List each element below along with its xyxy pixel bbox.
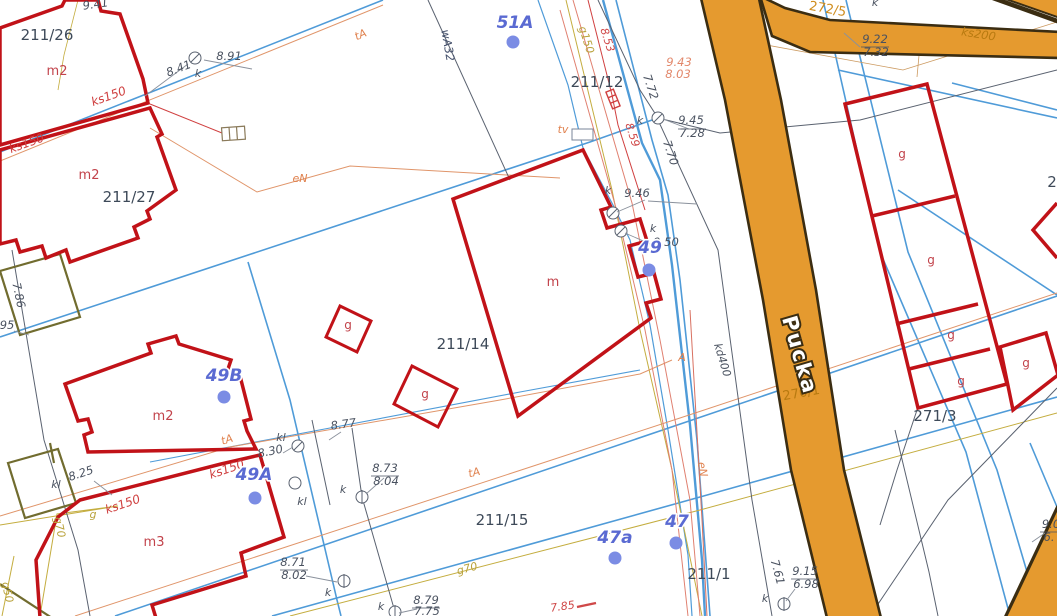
label-util-k-5: k: [872, 0, 879, 9]
tv-box: [572, 129, 593, 140]
buildings: [0, 0, 1057, 616]
label-elev-90: 9.0: [1042, 517, 1057, 531]
telecom-power-lines: [0, 5, 1057, 616]
leader: [617, 200, 645, 212]
label-parcel-211-14: 211/14: [437, 335, 490, 353]
survey-point-plain: [289, 477, 301, 489]
label-util-eN-2: eN: [695, 461, 710, 478]
label-elev-772: 7.72: [640, 72, 661, 101]
label-bldg-m2-1: m2: [47, 64, 68, 79]
label-addr-49A: 49A: [235, 465, 273, 485]
label-elev-873: 8.73: [372, 461, 398, 475]
label-util-ks150-4: ks150: [103, 492, 142, 517]
label-elev-877: 8.77: [330, 415, 358, 433]
label-elev-786: 7.86: [9, 281, 28, 309]
label-parcel-211-12: 211/12: [571, 73, 624, 91]
label-util-tA-2: tA: [219, 432, 234, 448]
water-line: [0, 120, 652, 337]
label-elev-698: 6.98: [793, 577, 819, 591]
label-util-ks150-2: ks150: [7, 130, 46, 156]
boundary: [312, 420, 330, 505]
label-addr-49B: 49B: [205, 366, 243, 386]
leader: [648, 201, 697, 204]
label-elev-841: 8.41: [164, 57, 193, 79]
garage-divider: [872, 196, 955, 216]
label-util-eN-1: eN: [293, 172, 308, 185]
label-elev-775: 7.75: [414, 604, 440, 616]
label-util-g50: g50: [0, 581, 16, 604]
road-branch: [760, 0, 1057, 58]
label-bldg-g-3: g: [898, 147, 906, 161]
label-elev-803: 8.03: [665, 67, 691, 81]
label-util-tA-3: tA: [467, 465, 482, 480]
label-parcel-211-26: 211/26: [21, 26, 74, 44]
building-partial-right: [1033, 203, 1057, 258]
label-util-k-7: k: [340, 483, 347, 496]
water-line: [1030, 443, 1057, 507]
label-util-A: A: [677, 351, 686, 364]
label-addr-47a: 47a: [596, 528, 632, 548]
leader-lines: [14, 33, 1045, 613]
roads: [700, 0, 1057, 616]
tv-box-symbol: [572, 129, 593, 140]
label-elev-732: 7.32: [863, 45, 889, 59]
water-line: [838, 70, 1057, 118]
label-parcel-271-3: 271/3: [913, 407, 956, 425]
boundary: [880, 407, 918, 525]
label-util-kl-3: kl: [51, 478, 60, 491]
label-bldg-m2-3: m2: [153, 409, 174, 424]
red-box-hatch: [610, 100, 617, 103]
label-util-k-4: k: [650, 222, 657, 235]
addr-dot-49A: [249, 492, 262, 505]
label-elev-728: 7.28: [679, 126, 705, 140]
label-addr-49: 49: [637, 238, 662, 258]
label-util-g70-2: g70: [455, 560, 479, 578]
label-util-tA-1: tA: [353, 26, 369, 43]
label-util-k-1: k: [195, 67, 202, 80]
label-parcel-partial: 2: [1047, 173, 1057, 191]
utility-box: [222, 126, 246, 141]
building-m2-21126: [0, 0, 148, 145]
label-parcel-211-15: 211/15: [476, 511, 529, 529]
label-util-g: g: [90, 508, 97, 521]
cadastral-map-svg: 211/26211/27211/12211/14211/15211/1271/3…: [0, 0, 1057, 616]
label-util-k-3: k: [605, 184, 612, 197]
label-addr-51A: 51A: [497, 13, 534, 33]
label-util-k-6: k: [762, 592, 769, 605]
label-util-wA32: wA32: [438, 28, 457, 62]
label-elev-6x: 6.: [1044, 530, 1055, 544]
red-dash-symbol: [577, 603, 596, 607]
leader: [329, 432, 341, 440]
label-elev-871: 8.71: [280, 555, 306, 569]
label-elev-830: 8.30: [256, 442, 284, 461]
label-elev-891: 8.91: [216, 49, 242, 63]
label-elev-922: 9.22: [862, 32, 888, 46]
address-points: [218, 36, 683, 565]
label-bldg-g-4: g: [927, 253, 935, 267]
road-pucka: [700, 0, 882, 616]
other-structures: [0, 254, 80, 616]
label-bldg-m2-2: m2: [79, 168, 100, 183]
map-canvas[interactable]: 211/26211/27211/12211/14211/15211/1271/3…: [0, 0, 1057, 616]
label-parcel-211-27: 211/27: [103, 188, 156, 206]
label-elev-95: 95: [0, 318, 14, 332]
label-elev-804: 8.04: [373, 474, 399, 488]
label-util-kd400: kd400: [711, 342, 733, 379]
label-bldg-g-6: g: [957, 374, 965, 388]
label-elev-945: 9.45: [678, 113, 704, 127]
label-util-tv: tv: [558, 123, 569, 136]
telecom-line-tA: [0, 360, 672, 516]
addr-dot-51A: [507, 36, 520, 49]
label-bldg-m: m: [547, 275, 560, 290]
label-elev-915: 9.15: [792, 564, 818, 578]
label-elev-825: 8.25: [66, 463, 95, 484]
label-util-g150: g150: [576, 25, 597, 56]
label-bldg-g-2: g: [421, 387, 429, 401]
label-util-k-2: k: [637, 114, 644, 127]
addr-dot-49: [643, 264, 656, 277]
addr-dot-49B: [218, 391, 231, 404]
label-parcel-211-1: 211/1: [687, 565, 730, 583]
label-addr-47: 47: [664, 512, 689, 532]
water-line: [616, 0, 710, 616]
label-util-k-8: k: [378, 600, 385, 613]
label-elev-802: 8.02: [281, 568, 307, 582]
label-elev-770: 7.70: [660, 138, 681, 167]
label-elev-946: 9.46: [624, 186, 650, 200]
olive-building-kl: [8, 449, 76, 518]
survey-points-slash: [189, 52, 664, 489]
label-util-k-9: k: [325, 586, 332, 599]
garage-right-cell: [1000, 333, 1057, 410]
survey-points-cross: [338, 490, 790, 616]
label-bldg-g-5: g: [947, 328, 955, 342]
building-m2-21127: [0, 108, 176, 262]
label-bldg-g-1: g: [344, 318, 352, 332]
label-elev-785: 7.85: [549, 598, 575, 614]
label-elev-761: 7.61: [768, 558, 788, 586]
label-util-kl-2: kl: [297, 495, 306, 508]
telecom-line-tA: [75, 293, 1057, 616]
label-bldg-m3: m3: [144, 535, 165, 550]
label-bldg-g-7: g: [1022, 356, 1030, 370]
label-util-ks150-1: ks150: [89, 83, 128, 109]
addr-dot-47: [670, 537, 683, 550]
addr-dot-47a: [609, 552, 622, 565]
leader: [283, 447, 293, 453]
hatched-box-symbol: [222, 126, 246, 141]
